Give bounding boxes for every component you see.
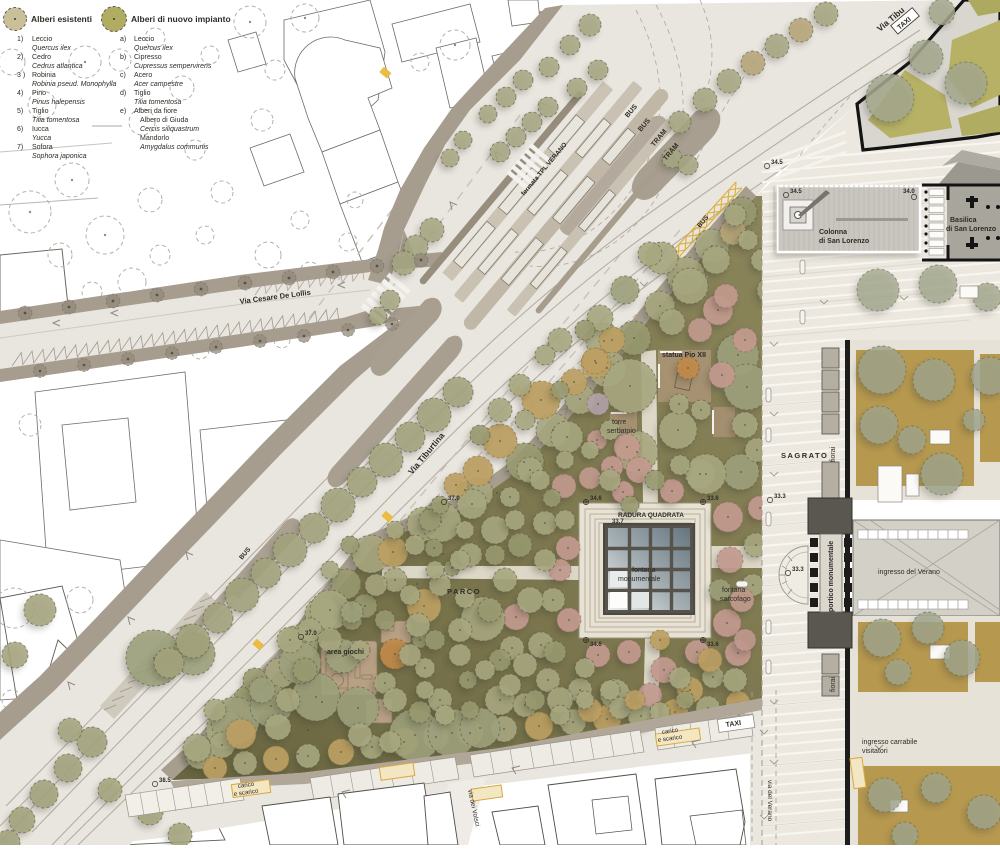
svg-text:Quercus ilex: Quercus ilex (32, 45, 71, 52)
svg-text:Cedrus atlantica: Cedrus atlantica (32, 63, 83, 70)
svg-text:PARCO: PARCO (447, 587, 481, 596)
svg-text:38.5: 38.5 (159, 778, 171, 784)
svg-text:34.5: 34.5 (790, 189, 802, 195)
svg-text:ingresso del Verano: ingresso del Verano (878, 569, 940, 576)
svg-text:d): d) (120, 90, 126, 97)
svg-text:Acer campestre: Acer campestre (133, 81, 183, 88)
svg-text:Robinia: Robinia (32, 72, 56, 79)
svg-text:Sofora: Sofora (32, 144, 53, 151)
svg-text:Tiglio: Tiglio (134, 90, 151, 97)
svg-text:c): c) (120, 72, 126, 79)
svg-text:6): 6) (17, 126, 23, 133)
svg-text:RADURA QUADRATA: RADURA QUADRATA (618, 512, 684, 519)
svg-text:Cipresso: Cipresso (134, 54, 162, 61)
svg-text:Tilia tomentosa: Tilia tomentosa (134, 99, 182, 106)
svg-text:34.5: 34.5 (771, 160, 783, 166)
svg-text:Colonna: Colonna (819, 229, 847, 236)
svg-text:Alberi da fiore: Alberi da fiore (134, 108, 177, 115)
svg-text:33.3: 33.3 (792, 567, 804, 573)
svg-text:SAGRATO: SAGRATO (781, 451, 828, 460)
svg-text:Sophora japonica: Sophora japonica (32, 153, 87, 160)
svg-text:33.3: 33.3 (774, 494, 786, 500)
svg-text:4): 4) (17, 90, 23, 97)
svg-text:visitatori: visitatori (862, 748, 888, 755)
svg-text:area giochi: area giochi (327, 649, 364, 656)
svg-text:Acero: Acero (134, 72, 152, 79)
svg-text:Amygdalus communis: Amygdalus communis (139, 144, 209, 151)
svg-text:Cupressus sempervirens: Cupressus sempervirens (134, 63, 212, 70)
svg-text:fontana: fontana (632, 567, 655, 574)
svg-text:37.0: 37.0 (448, 496, 460, 502)
svg-text:ingresso carrabile: ingresso carrabile (862, 739, 917, 746)
svg-text:33.7: 33.7 (612, 519, 624, 525)
svg-text:fontana: fontana (722, 587, 745, 594)
svg-text:Cercis siliquastrum: Cercis siliquastrum (140, 126, 199, 133)
svg-text:33.6: 33.6 (707, 496, 719, 502)
svg-text:3 ): 3 ) (17, 72, 25, 79)
svg-text:7): 7) (17, 144, 23, 151)
svg-text:Albero di Giuda: Albero di Giuda (140, 117, 188, 124)
svg-text:37.0: 37.0 (305, 631, 317, 637)
svg-text:Tilia tomentosa: Tilia tomentosa (32, 117, 80, 124)
svg-text:2): 2) (17, 54, 23, 61)
svg-text:serbatoio: serbatoio (607, 428, 636, 435)
svg-text:Robinia pseud. Monophylla: Robinia pseud. Monophylla (32, 81, 117, 88)
svg-text:Pinus halepensis: Pinus halepensis (32, 99, 85, 106)
svg-text:34.6: 34.6 (590, 642, 602, 648)
svg-text:Leccio: Leccio (32, 36, 52, 43)
svg-text:Alberi di nuovo impianto: Alberi di nuovo impianto (131, 14, 231, 24)
svg-text:34.6: 34.6 (590, 496, 602, 502)
svg-text:Cedro: Cedro (32, 54, 51, 61)
svg-text:portico monumentale: portico monumentale (828, 541, 835, 612)
svg-text:Quercus ilex: Quercus ilex (134, 45, 173, 52)
svg-text:sarcofago: sarcofago (720, 596, 751, 603)
svg-text:torre: torre (612, 419, 627, 426)
svg-text:e): e) (120, 108, 126, 115)
svg-text:monumentale: monumentale (618, 576, 661, 583)
svg-text:33.6: 33.6 (707, 642, 719, 648)
svg-text:34.0: 34.0 (903, 189, 915, 195)
svg-text:5): 5) (17, 108, 23, 115)
svg-text:Pino: Pino (32, 90, 46, 97)
svg-text:b): b) (120, 54, 126, 61)
svg-text:Tiglio: Tiglio (32, 108, 49, 115)
svg-text:di San Lorenzo: di San Lorenzo (819, 238, 869, 245)
svg-text:Leccio: Leccio (134, 36, 154, 43)
svg-text:fiorai: fiorai (830, 446, 837, 462)
svg-text:Iucca: Iucca (32, 126, 49, 133)
svg-text:di San Lorenzo: di San Lorenzo (946, 226, 996, 233)
svg-text:Mandorlo: Mandorlo (140, 135, 169, 142)
svg-text:Alberi esistenti: Alberi esistenti (31, 14, 92, 24)
svg-text:1): 1) (17, 36, 23, 43)
svg-text:statua Pio XII: statua Pio XII (662, 352, 706, 359)
svg-text:Basilica: Basilica (950, 217, 977, 224)
svg-text:Yucca: Yucca (32, 135, 51, 142)
svg-text:via del Verano: via del Verano (766, 780, 773, 822)
svg-text:fiorai: fiorai (830, 676, 837, 692)
svg-text:a): a) (120, 36, 126, 43)
